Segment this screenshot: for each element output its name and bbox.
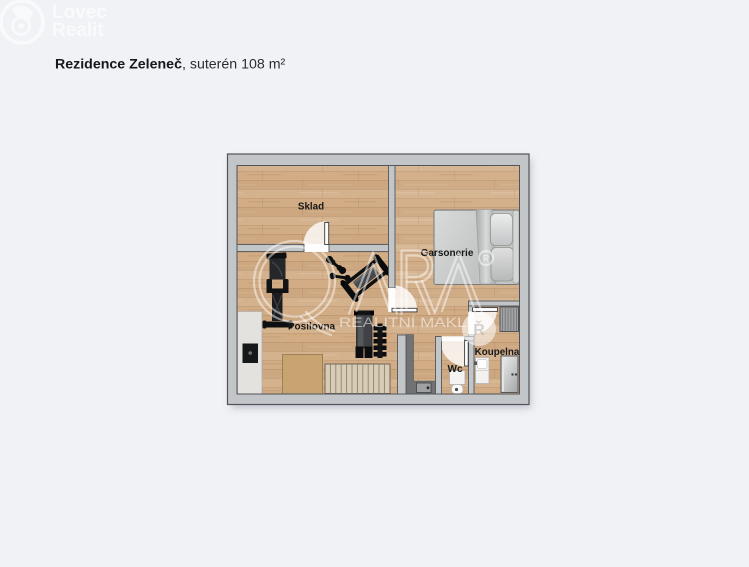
svg-text:Koupelna: Koupelna	[475, 347, 520, 358]
svg-text:Realit: Realit	[52, 20, 104, 41]
svg-text:R: R	[483, 254, 490, 264]
svg-text:Ř: Ř	[473, 320, 485, 339]
svg-text:Sklad: Sklad	[298, 202, 324, 213]
svg-text:Wc: Wc	[448, 364, 463, 375]
svg-text:Garsonerie: Garsonerie	[421, 248, 474, 259]
svg-text:Rezidence Zeleneč, suterén 108: Rezidence Zeleneč, suterén 108 m²	[55, 57, 286, 73]
